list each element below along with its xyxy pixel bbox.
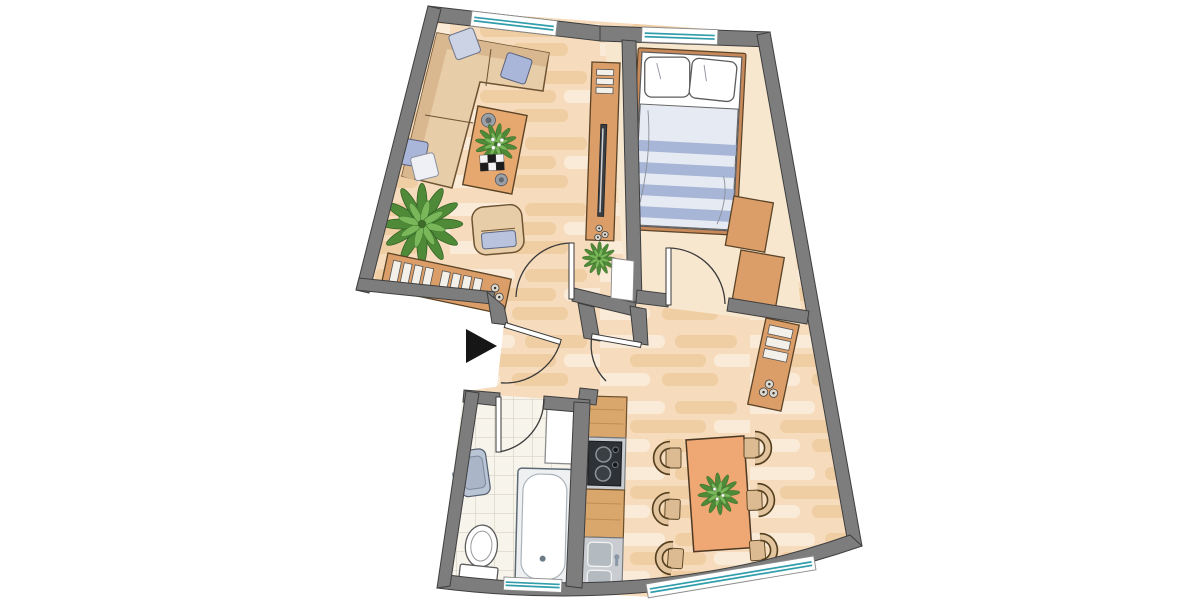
window-bedroom (641, 27, 717, 45)
wardrobe-section (725, 196, 773, 252)
sofa-pillow (410, 152, 439, 181)
floor-plan-canvas (0, 0, 1200, 600)
striped-duvet (634, 104, 738, 230)
armchair (471, 204, 525, 256)
washing-machine (545, 405, 574, 464)
dining-chair (657, 445, 681, 471)
dining-chair (656, 496, 681, 523)
double-bed (629, 48, 746, 235)
dining-chair (744, 435, 768, 461)
dining-table (686, 436, 752, 552)
bathtub (515, 468, 573, 585)
cooktop (588, 441, 622, 486)
bed-pillow (645, 57, 690, 97)
wall-niche (611, 258, 634, 301)
window-bathroom (503, 577, 562, 593)
dining-chair (747, 487, 772, 514)
bed-pillow (689, 58, 738, 102)
books (480, 154, 505, 171)
floor-plan-page (0, 0, 1200, 600)
dining-chair (658, 544, 684, 572)
